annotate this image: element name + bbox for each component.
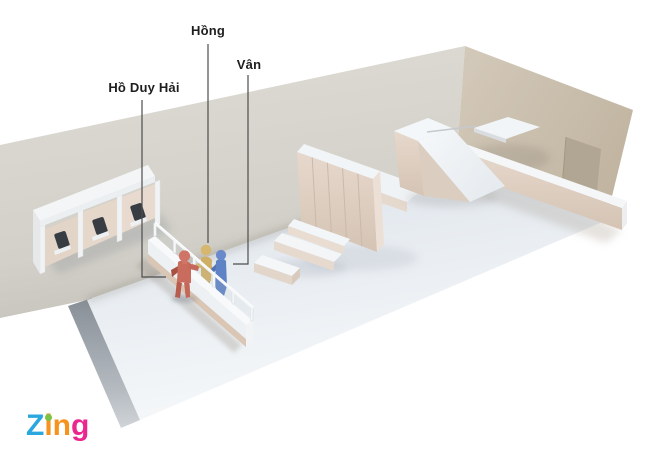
room-3d-scene: [0, 0, 660, 458]
zing-logo: Zing: [26, 411, 89, 441]
infographic-canvas: Hồ Duy Hải Hồng Vân Zing: [0, 0, 660, 458]
label-ho-duy-hai: Hồ Duy Hải: [108, 80, 179, 95]
logo-letter-z: Z: [26, 411, 44, 441]
logo-letter-g: g: [71, 411, 89, 441]
logo-letter-n: n: [53, 411, 71, 441]
label-van: Vân: [237, 57, 261, 72]
label-hong: Hồng: [191, 23, 225, 38]
